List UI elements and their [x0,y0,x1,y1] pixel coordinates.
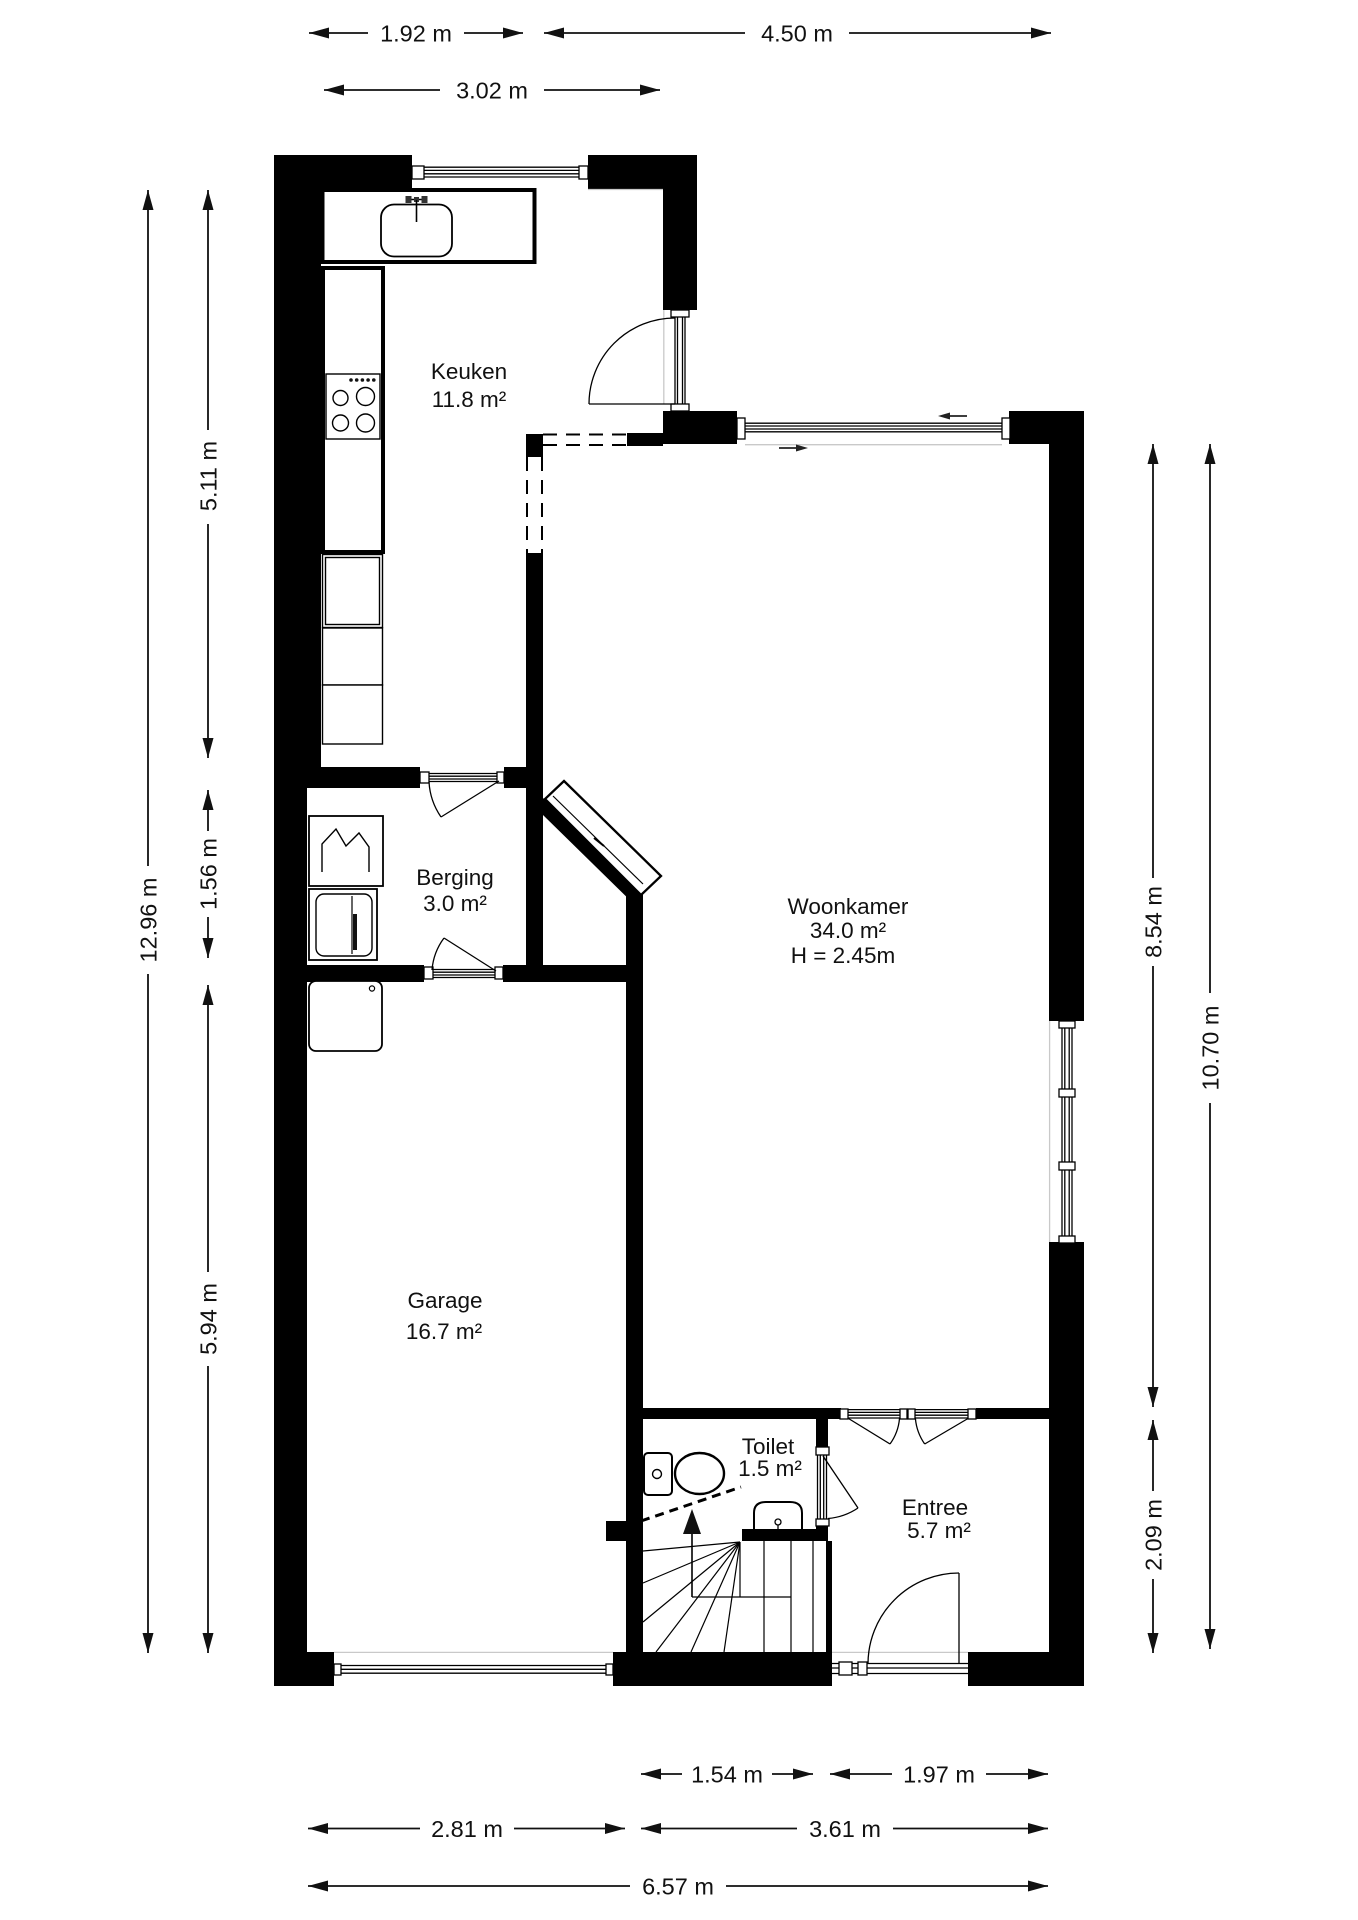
svg-text:1.54 m: 1.54 m [691,1762,763,1788]
svg-text:4.50 m: 4.50 m [761,21,833,47]
svg-text:Entree: Entree [902,1495,968,1520]
svg-text:Woonkamer: Woonkamer [788,894,909,919]
svg-text:34.0 m²: 34.0 m² [810,918,887,943]
svg-text:1.56 m: 1.56 m [196,838,222,910]
svg-text:1.5 m²: 1.5 m² [738,1456,802,1481]
svg-text:Garage: Garage [407,1288,482,1313]
svg-text:12.96 m: 12.96 m [136,878,162,963]
svg-text:Keuken: Keuken [431,359,507,384]
svg-text:2.09 m: 2.09 m [1141,1499,1167,1571]
svg-text:2.81 m: 2.81 m [431,1816,503,1842]
svg-text:Berging: Berging [416,865,494,890]
svg-text:8.54 m: 8.54 m [1141,886,1167,958]
svg-text:3.61 m: 3.61 m [809,1816,881,1842]
svg-text:5.94 m: 5.94 m [196,1283,222,1355]
svg-text:5.7 m²: 5.7 m² [907,1518,971,1543]
svg-text:10.70 m: 10.70 m [1198,1006,1224,1091]
svg-text:3.02 m: 3.02 m [456,78,528,104]
svg-text:6.57 m: 6.57 m [642,1874,714,1900]
svg-text:1.92 m: 1.92 m [380,21,452,47]
svg-text:H = 2.45m: H = 2.45m [791,943,895,968]
svg-text:3.0 m²: 3.0 m² [423,891,487,916]
svg-text:1.97 m: 1.97 m [903,1762,975,1788]
svg-text:11.8 m²: 11.8 m² [432,387,507,412]
svg-text:16.7 m²: 16.7 m² [406,1319,483,1344]
svg-text:5.11 m: 5.11 m [196,441,222,511]
